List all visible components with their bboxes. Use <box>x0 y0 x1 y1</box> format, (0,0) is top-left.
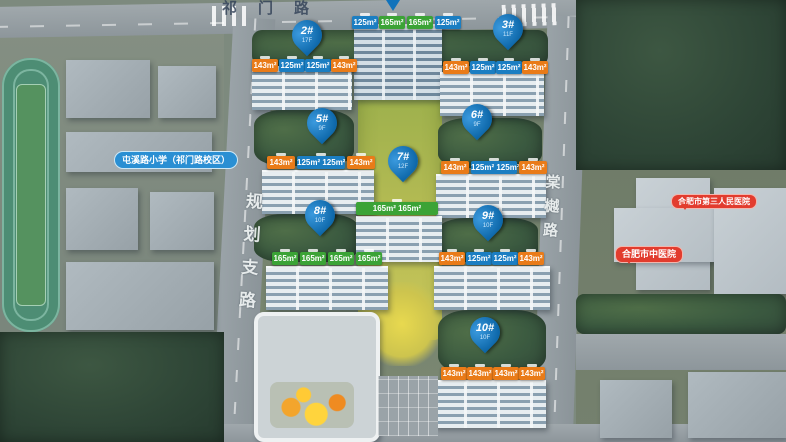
unit-area-tag: 165m² 165m² <box>356 202 438 215</box>
building-number: 10# <box>476 323 494 334</box>
unit-area-tag: 143m² <box>522 61 548 74</box>
unit-area-tag: 143m² <box>252 59 278 72</box>
unit-area-tag: 143m² <box>439 252 465 265</box>
unit-area-tag: 165m² <box>356 252 382 265</box>
unit-area-tag: 143m² <box>519 161 547 174</box>
unit-area-tag: 143m² <box>493 367 519 380</box>
campus-building <box>158 66 216 118</box>
unit-area-tag: 143m² <box>519 367 545 380</box>
trees-southwest <box>0 332 224 442</box>
building-floors: 9F <box>473 121 480 129</box>
aerial-site-plan: 祁门路 规划支路 棠樾路 125m² 165m² 165m² 125m² 143… <box>0 0 786 442</box>
sports-field <box>16 84 46 306</box>
residential-building-1 <box>354 24 442 100</box>
map-pin-icon: 3# 11F <box>487 8 529 50</box>
building-number: 9# <box>482 211 494 222</box>
building-number: 7# <box>397 152 409 163</box>
building-number: 6# <box>471 110 483 121</box>
campus-building <box>66 262 214 330</box>
map-pin-icon: 9# 10F <box>467 199 509 241</box>
unit-area-tag: 125m² <box>352 16 378 29</box>
residential-building-2 <box>252 66 352 110</box>
building-number: 8# <box>314 206 326 217</box>
building-marker-3[interactable]: 3# 11F <box>493 14 523 54</box>
building-floors: 10F <box>315 217 325 225</box>
unit-area-tag: 165m² <box>300 252 326 265</box>
unit-area-tag: 165m² <box>407 16 433 29</box>
poi-label-tcm-hospital[interactable]: 合肥市中医院 <box>615 246 683 263</box>
map-pin-icon: 2# 17F <box>286 14 328 56</box>
building-floors: 11F <box>503 31 513 39</box>
map-pin-icon: 6# 9F <box>456 98 498 140</box>
map-pin-icon: 5# 9F <box>301 102 343 144</box>
building-marker-9[interactable]: 9# 10F <box>473 205 503 245</box>
road-name-tangyue: 棠樾路 <box>538 173 563 246</box>
building-floors: 10F <box>483 222 493 230</box>
residential-building-10 <box>434 380 546 428</box>
trees-northeast <box>576 0 786 170</box>
poi-label-school[interactable]: 屯溪路小学（祁门路校区） <box>114 151 238 169</box>
pin-1-tip[interactable] <box>386 0 400 11</box>
unit-area-tag: 125m² <box>466 252 492 265</box>
residential-building-8 <box>266 266 388 310</box>
unit-area-tag: 125m² <box>492 252 518 265</box>
unit-area-tag: 143m² <box>267 156 295 169</box>
unit-area-tag: 143m² <box>467 367 493 380</box>
hospital-building <box>688 372 786 438</box>
unit-area-tag: 165m² <box>328 252 354 265</box>
unit-area-tag: 125m² <box>470 61 496 74</box>
unit-area-tag: 125m² <box>305 59 331 72</box>
building-floors: 17F <box>302 37 312 45</box>
building-number: 3# <box>502 20 514 31</box>
sports-track <box>2 58 60 332</box>
parking-lot <box>378 376 438 436</box>
building-floors: 12F <box>398 163 408 171</box>
trees <box>576 294 786 334</box>
building-number: 5# <box>316 114 328 125</box>
campus-building <box>66 60 150 118</box>
map-pin-icon: 8# 10F <box>299 194 341 236</box>
campus-building <box>150 192 214 250</box>
campus-building <box>66 188 138 250</box>
map-pin-icon: 10# 10F <box>464 311 506 353</box>
road-name-qimen: 祁门路 <box>222 0 330 18</box>
east-cross-road <box>576 334 786 370</box>
unit-area-tag: 125m² <box>279 59 305 72</box>
building-marker-6[interactable]: 6# 9F <box>462 104 492 144</box>
unit-area-tag: 143m² <box>331 59 357 72</box>
building-marker-2[interactable]: 2# 17F <box>292 20 322 60</box>
map-pin-icon: 7# 12F <box>382 140 424 182</box>
unit-area-tag: 143m² <box>518 252 544 265</box>
building-floors: 9F <box>318 125 325 133</box>
building-number: 2# <box>301 26 313 37</box>
unit-area-tag: 165m² <box>272 252 298 265</box>
building-marker-10[interactable]: 10# 10F <box>470 317 500 357</box>
residential-building-9 <box>434 266 550 310</box>
unit-area-tag: 143m² <box>443 61 469 74</box>
unit-area-tag: 125m² 125m² <box>297 156 345 169</box>
poi-label-third-peoples-hospital[interactable]: 合肥市第三人民医院 <box>671 194 757 209</box>
unit-area-tag: 143m² <box>441 161 469 174</box>
kindergarten-playground <box>270 382 354 428</box>
unit-area-tag: 125m² <box>496 61 522 74</box>
hospital-building <box>600 380 672 438</box>
unit-area-tag: 143m² <box>347 156 375 169</box>
building-marker-5[interactable]: 5# 9F <box>307 108 337 148</box>
unit-area-tag: 165m² <box>379 16 405 29</box>
building-marker-8[interactable]: 8# 10F <box>305 200 335 240</box>
unit-area-tag: 143m² <box>441 367 467 380</box>
building-floors: 10F <box>480 334 490 342</box>
kindergarten <box>254 312 380 442</box>
unit-area-tag: 125m² 125m² <box>471 161 517 174</box>
unit-area-tag: 125m² <box>435 16 461 29</box>
building-marker-7[interactable]: 7# 12F <box>388 146 418 186</box>
